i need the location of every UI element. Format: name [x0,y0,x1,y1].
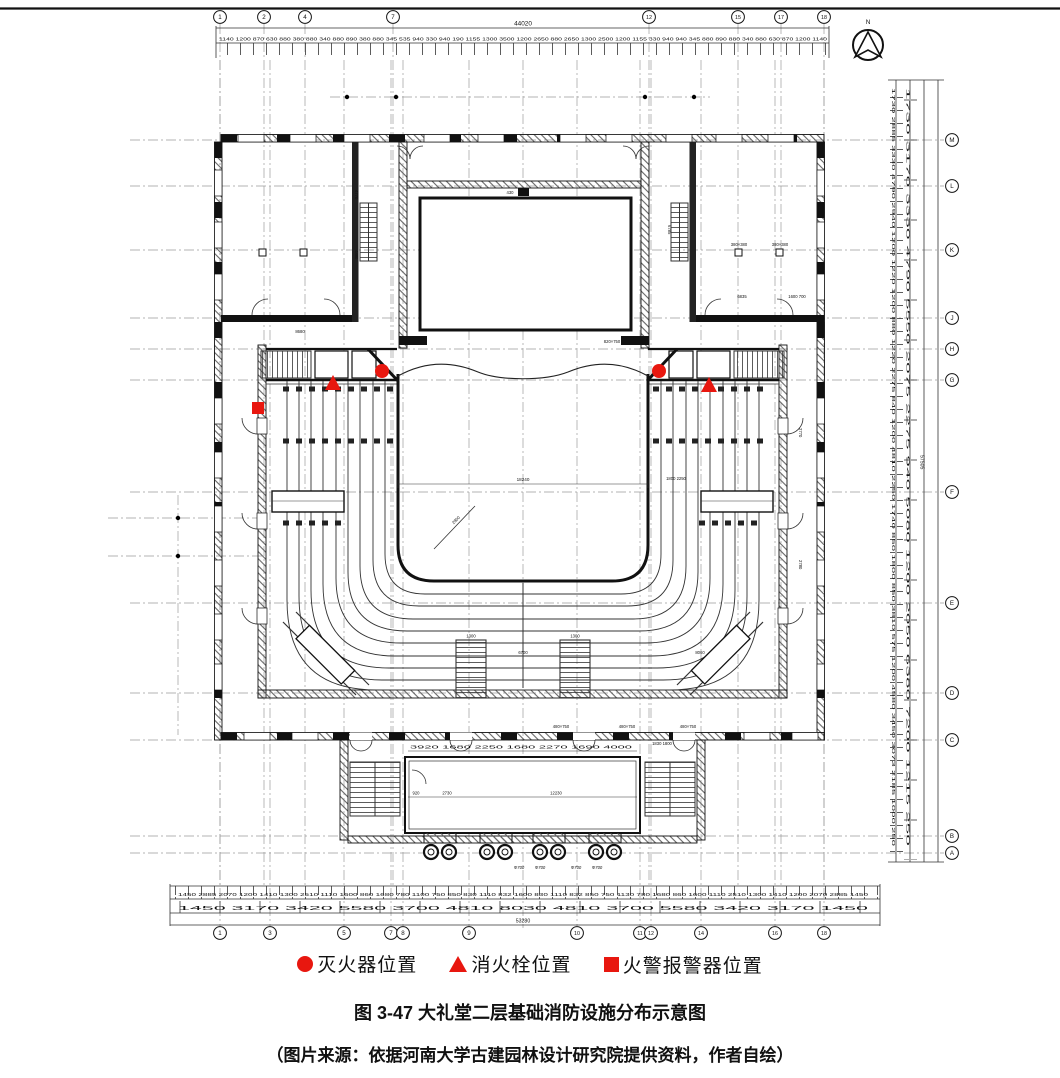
dim-backstage-stair: 6785 [667,225,672,235]
svg-text:G: G [950,377,955,384]
extinguisher-legend-icon [297,956,313,972]
svg-text:18: 18 [821,931,827,937]
north-arrow: N [853,19,883,60]
dim-porch-col-4: Φ700 [592,865,603,870]
svg-text:14: 14 [698,931,704,937]
legend-item-alarm: 火警报警器位置 [604,951,763,978]
dim-aisle-gap: 6700 [518,650,528,655]
dim-stage-tick: 430 [507,190,515,195]
grid-bubble-bottom-16: 16 [769,927,782,940]
dim-porch-col-1: Φ700 [514,865,525,870]
dim-bottom-main: 1450 3170 3420 5580 3700 4810 8030 4810 … [178,906,868,912]
grid-bubble-top-17: 17 [775,11,788,24]
hydrant-legend-icon [449,956,467,972]
legend-item-extinguisher: 灭火器位置 [297,950,417,977]
svg-text:8: 8 [401,930,405,937]
svg-text:3: 3 [268,930,272,937]
dim-lobby-top: 3920 1680 2250 1680 2270 1690 4000 [410,745,634,750]
grid-bubble-right-F: F [946,486,959,499]
svg-text:M: M [949,137,954,144]
floor-plan: 44020 1140 1200 870 630 880 380 880 340 … [0,0,1060,1078]
grid-bubble-right-H: H [946,343,959,356]
dim-door-b3: 480×750 [680,724,697,729]
svg-text:1: 1 [218,14,222,21]
dim-hall-width: 18240 [517,477,530,482]
svg-text:5: 5 [342,930,346,937]
portico [340,733,705,860]
stage [399,142,649,348]
dim-top-row: 1140 1200 870 630 880 380 880 340 880 89… [219,37,828,42]
svg-text:15: 15 [735,15,741,21]
grid-bubble-bottom-12: 12 [645,927,658,940]
grid-bubble-top-1: 1 [214,11,227,24]
dim-door-b2: 480×750 [619,724,636,729]
dim-corridor-b: 2780 [798,560,803,570]
dim-door-b1: 480×750 [553,724,570,729]
svg-text:1: 1 [218,930,222,937]
grid-bubble-bottom-5: 5 [338,927,351,940]
grid-bubble-right-E: E [946,597,959,610]
dim-wing-right: 6835 [737,294,747,299]
svg-text:C: C [950,737,955,744]
svg-text:7: 7 [389,930,393,937]
marker-extinguisher [652,364,666,378]
dim-right-bank: 8060 [695,650,705,655]
grid-bubble-right-B: B [946,830,959,843]
dim-bottom-small: 1450 2885 2070 1200 1410 1300 2510 1110 … [178,892,869,897]
legend: 灭火器位置 消火栓位置 火警报警器位置 [0,950,1060,978]
grid-bubble-bottom-9: 9 [463,927,476,940]
dim-aisle-left: 1300 [466,634,476,639]
figure-caption: 图 3-47 大礼堂二层基础消防设施分布示意图 [0,999,1060,1025]
dim-strip-right: 1730 2885 3330 4790 2940 1200 1220 1200 … [888,80,944,862]
dim-right-total: 57505 [919,455,925,470]
grid-bubble-right-M: M [946,134,959,147]
dim-right-bank-top: 1800 2250 [666,476,686,481]
legend-item-hydrant: 消火栓位置 [449,950,571,977]
grid-bubble-bottom-10: 10 [571,927,584,940]
grid-bubble-top-18: 18 [818,11,831,24]
marker-extinguisher [375,364,389,378]
legend-label: 灭火器位置 [317,950,417,977]
dim-column-b: 380×380 [772,242,789,247]
svg-text:12: 12 [648,931,654,937]
grid-bubble-bottom-8: 8 [397,927,410,940]
dim-porch-col-3: Φ700 [571,865,582,870]
dim-right-col-b: 1730 3170 3330 4790 5550 2075 2275 940 5… [906,88,911,849]
svg-text:16: 16 [772,931,778,937]
grid-bubble-right-G: G [946,374,959,387]
grid-bubble-right-J: J [946,312,959,325]
grid-bubble-top-15: 15 [732,11,745,24]
grid-bubble-right-K: K [946,244,959,257]
svg-text:F: F [950,489,954,496]
svg-text:E: E [950,600,954,607]
svg-text:2: 2 [262,14,266,21]
grid-bubble-top-12: 12 [643,11,656,24]
north-label: N [866,19,871,26]
grid-bubble-bottom-1: 1 [214,927,227,940]
svg-text:11: 11 [637,931,643,937]
svg-text:D: D [950,690,955,697]
dim-lobby-width: 12230 [550,791,562,796]
grid-bubble-right-C: C [946,734,959,747]
axis-dots [108,95,710,735]
svg-text:18: 18 [821,15,827,21]
figure-source: （图片来源：依据河南大学古建园林设计研究院提供资料，作者自绘） [0,1041,1060,1066]
svg-text:4: 4 [303,14,307,21]
dim-strip-bottom: 1450 2885 2070 1200 1410 1300 2510 1110 … [170,884,880,926]
dim-top-total: 44020 [514,21,532,28]
dim-right-col-a: 1730 2885 3330 4790 2940 1200 1220 1200 … [891,88,896,848]
legend-label: 消火栓位置 [471,950,571,977]
dim-lobby-left: 2730 [442,791,452,796]
svg-text:H: H [950,346,954,353]
grid-bubble-bottom-18: 18 [818,927,831,940]
grid-bubble-top-4: 4 [299,11,312,24]
dim-door-a: 820×750 [604,339,621,344]
grid-bubble-bottom-14: 14 [695,927,708,940]
svg-text:9: 9 [467,930,471,937]
svg-text:J: J [950,315,953,322]
dim-wing-stair-a: 4770 [354,190,359,200]
svg-text:B: B [950,833,954,840]
svg-text:7: 7 [391,14,395,21]
aisles [283,583,763,698]
grid-bubble-top-7: 7 [387,11,400,24]
dim-wing-stair-b: 4880 [354,250,359,260]
dim-bottom-total: 53280 [516,919,531,925]
grid-bubble-top-2: 2 [258,11,271,24]
dim-lobby-door: 920 [413,791,421,796]
dim-strip-top: 44020 1140 1200 870 630 880 380 880 340 … [216,21,829,59]
dim-aisle-right: 1300 [570,634,580,639]
stage-side-rooms [261,349,784,381]
grid-bubble-right-A: A [946,847,959,860]
marker-alarm [252,402,264,414]
dim-porch-col-2: Φ700 [535,865,546,870]
legend-label: 火警报警器位置 [623,951,763,978]
porch-columns [424,845,621,859]
svg-text:17: 17 [778,15,784,21]
alarm-legend-icon [604,957,619,972]
dim-column-a: 380×380 [731,242,748,247]
grid-bubble-right-D: D [946,687,959,700]
grid-bubble-right-L: L [946,180,959,193]
dim-wing-left: 8680 [295,329,305,334]
svg-text:12: 12 [646,15,652,21]
svg-text:L: L [950,183,954,190]
dim-corridor-a: 2770 [798,428,803,438]
svg-text:10: 10 [574,931,580,937]
dim-diagonal: 2800 [451,514,462,525]
dim-wing-right-door: 1600 700 [788,294,806,299]
stage-floor [420,198,631,330]
dim-lobby-right-top: 1830 1800 [652,741,672,746]
grid-bubble-bottom-3: 3 [264,927,277,940]
grid-bubble-bottom-7: 7 [385,927,398,940]
